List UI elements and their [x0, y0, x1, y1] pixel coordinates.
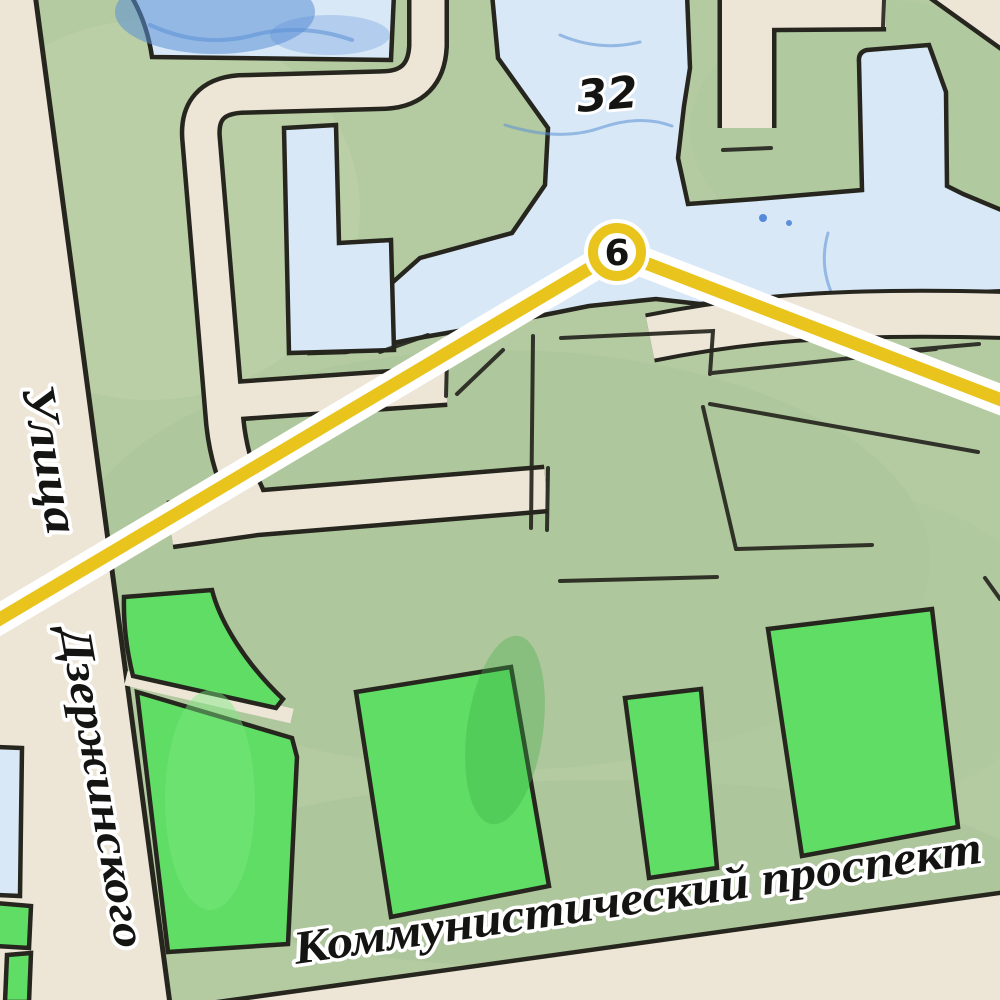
- route-stop-marker[interactable]: 6: [584, 219, 650, 285]
- small-west-building: [0, 747, 22, 896]
- park-small-b: [5, 953, 31, 1000]
- driveway-arm-end-cap: [883, 0, 884, 27]
- park-small-a: [0, 903, 31, 948]
- stop-number-label: 6: [604, 233, 629, 274]
- driveway-arm: [742, 13, 886, 14]
- map-canvas[interactable]: 6 32 Улица Дзержинского Коммунистический…: [0, 0, 1000, 1000]
- park-rect-east: [768, 609, 958, 856]
- city-map: 6 32 Улица Дзержинского Коммунистический…: [0, 0, 1000, 1000]
- block-number-label: 32: [575, 67, 640, 123]
- driveway-end-cap: [723, 148, 771, 150]
